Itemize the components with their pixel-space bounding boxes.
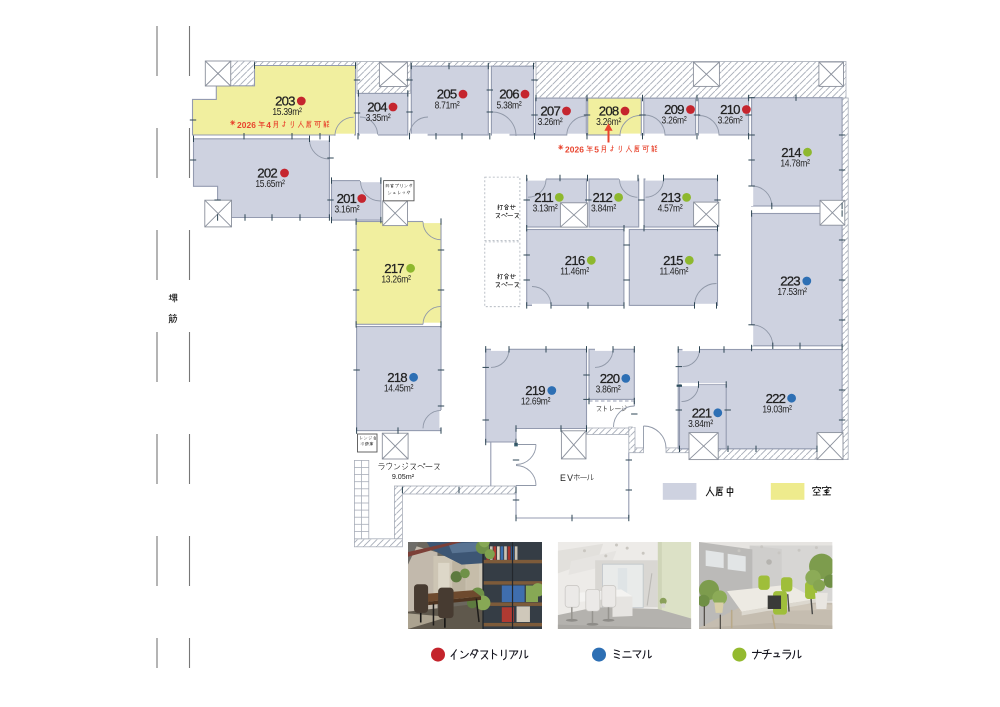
svg-text:3.26m²: 3.26m² [718, 115, 743, 126]
svg-text:4.57m²: 4.57m² [658, 203, 683, 214]
svg-text:11.46m²: 11.46m² [660, 266, 689, 277]
svg-text:5: 5 [594, 145, 599, 155]
svg-text:2026: 2026 [237, 120, 256, 130]
svg-text:3.26m²: 3.26m² [538, 117, 563, 128]
svg-text:19.03m²: 19.03m² [762, 404, 791, 415]
svg-text:3.84m²: 3.84m² [591, 203, 616, 214]
svg-text:14.78m²: 14.78m² [780, 158, 809, 169]
svg-text:2026: 2026 [565, 145, 584, 155]
svg-text:3.84m²: 3.84m² [688, 418, 713, 429]
svg-text:8.71m²: 8.71m² [435, 100, 460, 111]
svg-text:12.69m²: 12.69m² [521, 396, 550, 407]
svg-text:17.53m²: 17.53m² [777, 287, 806, 298]
svg-text:4: 4 [266, 120, 271, 130]
svg-text:EV: EV [560, 473, 574, 483]
svg-text:11.46m²: 11.46m² [560, 266, 589, 277]
svg-text:3.13m²: 3.13m² [533, 203, 558, 214]
svg-text:3.26m²: 3.26m² [662, 115, 687, 126]
svg-text:14.45m²: 14.45m² [384, 383, 413, 394]
svg-text:15.39m²: 15.39m² [272, 107, 301, 118]
svg-text:13.26m²: 13.26m² [381, 274, 410, 285]
svg-text:3.16m²: 3.16m² [334, 204, 359, 215]
svg-text:9.05m²: 9.05m² [392, 472, 415, 481]
svg-text:15.65m²: 15.65m² [255, 179, 284, 190]
svg-text:3.35m²: 3.35m² [366, 113, 391, 124]
svg-text:3.86m²: 3.86m² [596, 384, 621, 395]
svg-text:5.38m²: 5.38m² [497, 100, 522, 111]
